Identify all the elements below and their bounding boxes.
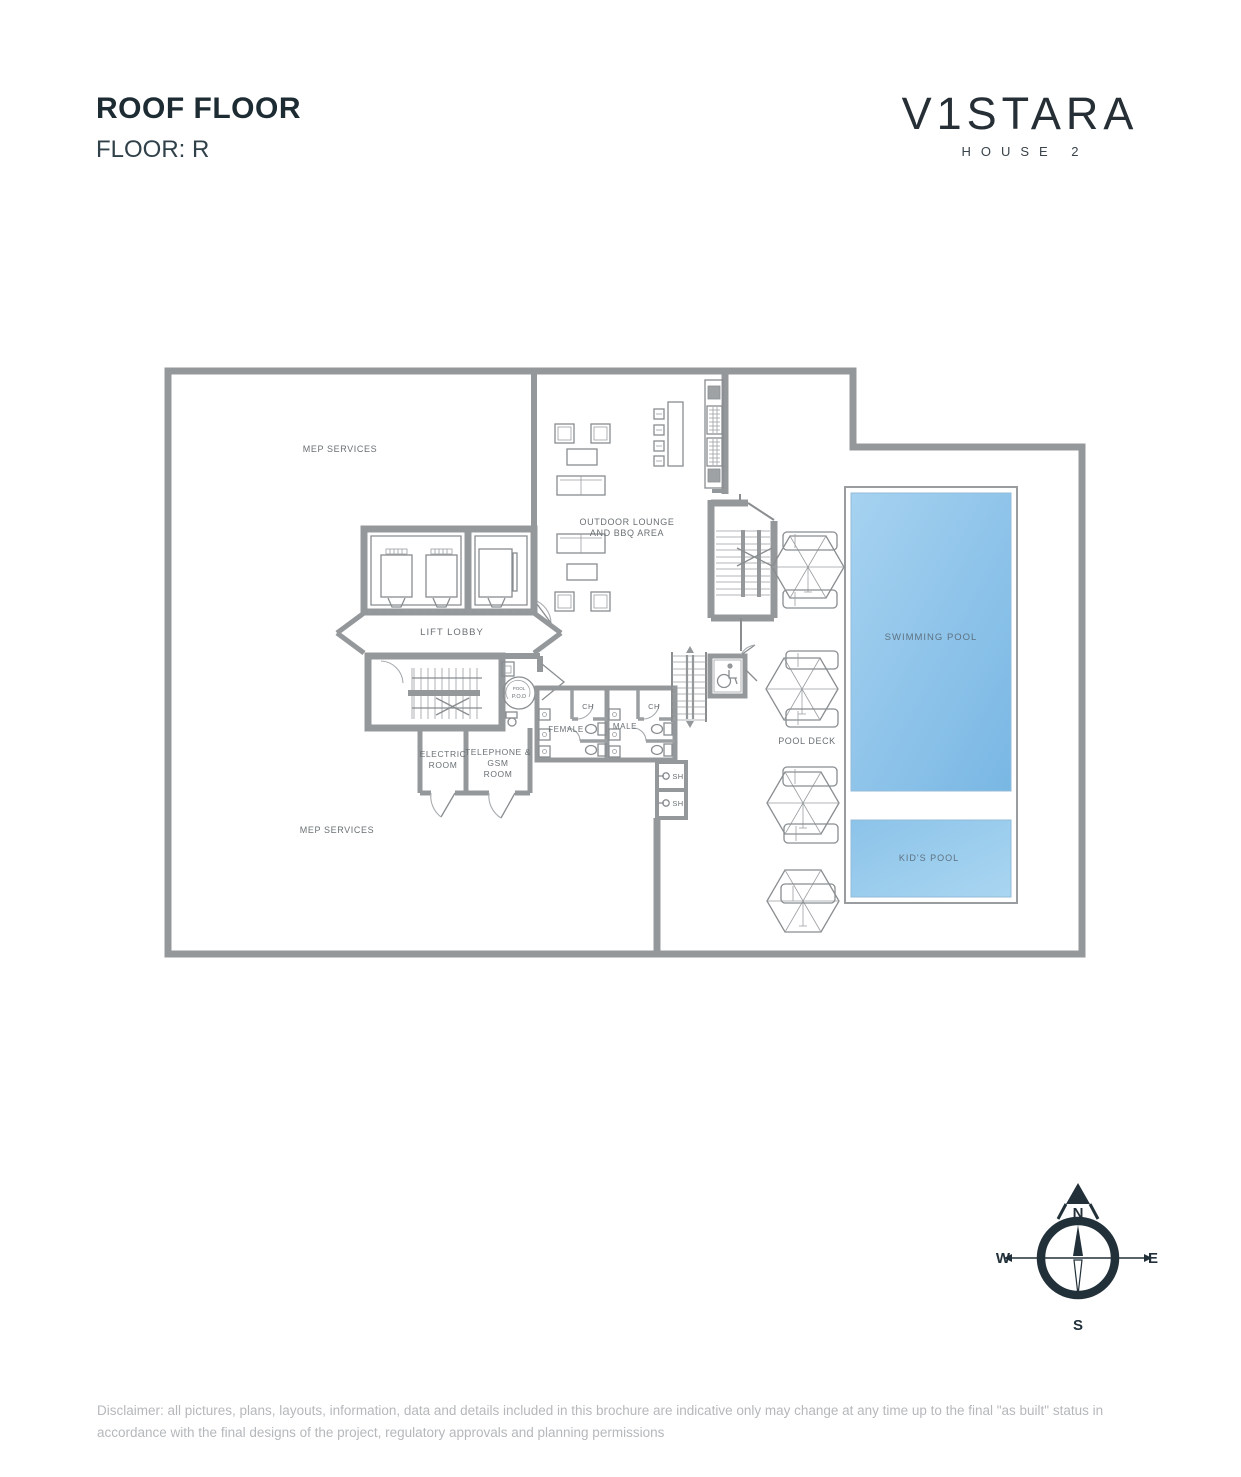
label-kids-pool: KID'S POOL <box>899 853 959 863</box>
armchair <box>555 424 574 443</box>
main-staircase <box>368 656 502 728</box>
label-ch-left: CH <box>582 702 594 711</box>
label-male: MALE <box>613 722 637 731</box>
lift-cab <box>381 549 412 597</box>
sofa <box>557 476 605 495</box>
armchair <box>591 592 610 611</box>
pool-staircase <box>711 494 774 651</box>
label-pod-2: P.O.D <box>512 694 526 700</box>
shower-rooms <box>657 762 686 818</box>
armchair <box>555 592 574 611</box>
label-female: FEMALE <box>548 725 584 734</box>
label-lift-lobby: LIFT LOBBY <box>420 627 484 638</box>
compass-west-label: W <box>996 1250 1011 1267</box>
floor-plan-svg: MEP SERVICES MEP SERVICES OUTDOOR LOUNGE… <box>0 0 1241 1477</box>
label-ch-right: CH <box>648 702 660 711</box>
umbrella-group <box>767 767 839 843</box>
label-sh-bottom: SH <box>672 799 683 808</box>
compass-south-label: S <box>1073 1317 1083 1334</box>
label-electric-1: ELECTRIC <box>420 749 467 759</box>
label-telephone-3: ROOM <box>484 769 513 779</box>
label-swimming-pool: SWIMMING POOL <box>885 632 978 643</box>
service-lift-cab <box>479 549 517 597</box>
bbq-counter <box>705 371 727 494</box>
umbrella-group <box>766 651 838 727</box>
wheelchair-icon <box>718 663 738 687</box>
label-pod-1: POOL <box>513 686 526 691</box>
umbrella-group <box>772 532 844 608</box>
label-sh-top: SH <box>672 772 683 781</box>
armchair <box>591 424 610 443</box>
umbrella-group <box>767 870 839 932</box>
coffee-table <box>567 564 597 580</box>
pool-area <box>845 487 1017 903</box>
label-pool-deck: POOL DECK <box>778 736 836 746</box>
label-mep-top: MEP SERVICES <box>303 444 377 454</box>
lift-bank <box>364 529 534 612</box>
label-telephone-1: TELEPHONE & <box>465 747 531 757</box>
grill-symbol <box>707 438 722 466</box>
accessible-wc <box>710 645 757 696</box>
brochure-page: ROOF FLOOR FLOOR: R V1STARA HOUSE 2 <box>0 0 1241 1477</box>
coffee-table <box>567 449 597 465</box>
bar-counter <box>654 402 683 466</box>
label-lounge-2: AND BBQ AREA <box>590 528 664 538</box>
disclaimer-text: Disclaimer: all pictures, plans, layouts… <box>97 1400 1162 1443</box>
label-lounge-1: OUTDOOR LOUNGE <box>580 517 675 527</box>
label-mep-bottom: MEP SERVICES <box>300 825 374 835</box>
compass-north-label: N <box>1073 1205 1084 1222</box>
lift-cab <box>426 549 457 597</box>
compass-east-label: E <box>1148 1250 1158 1267</box>
toilet-block <box>537 688 675 760</box>
pool-pod-room <box>502 656 564 726</box>
floor-plan: MEP SERVICES MEP SERVICES OUTDOOR LOUNGE… <box>168 371 1082 954</box>
electric-room <box>420 728 466 817</box>
compass-rose-icon: N W E S <box>996 1183 1158 1334</box>
grill-symbol <box>707 406 722 434</box>
label-telephone-2: GSM <box>487 758 508 768</box>
label-electric-2: ROOM <box>429 760 458 770</box>
